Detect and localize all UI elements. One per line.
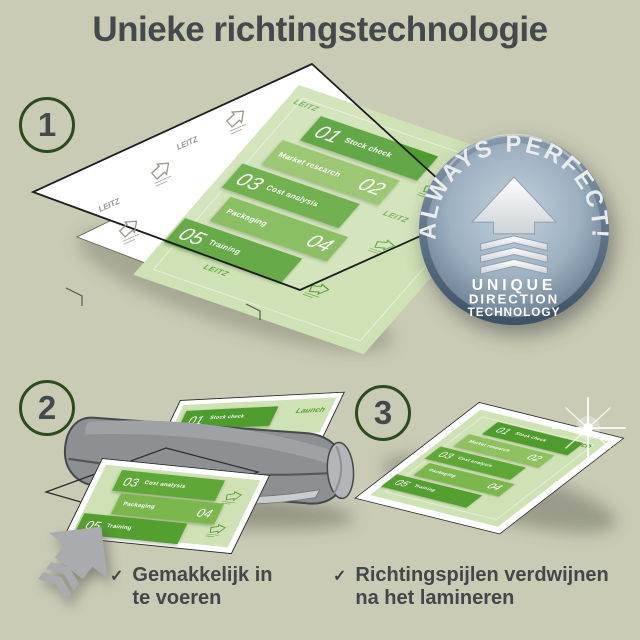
band-number: 01 <box>310 123 346 146</box>
step-number-text: 1 <box>38 106 56 144</box>
band-label: Packaging <box>224 208 269 228</box>
unique-direction-technology-figure: Unieke richtingstechnologie Launch 01 St… <box>0 0 640 640</box>
checklist-text: Richtingspijlen verdwijnen na het lamine… <box>355 564 608 611</box>
band-label: Market research <box>276 151 342 178</box>
band-number: 03 <box>121 475 141 488</box>
band-label: Stock check <box>342 137 394 159</box>
leitz-watermark: LEITZ <box>175 134 200 152</box>
band-label: Stock check <box>512 433 547 444</box>
band-label: Training <box>411 485 436 493</box>
leitz-watermark: LEITZ <box>381 209 410 224</box>
band-label: Packaging <box>426 469 456 479</box>
leitz-watermark: LEITZ <box>201 263 230 278</box>
band-number: 03 <box>232 170 268 193</box>
band-label: Training <box>206 239 242 256</box>
direction-arrow-watermark-icon <box>364 230 406 260</box>
band-label: Packaging <box>122 502 156 511</box>
direction-arrow-watermark-icon <box>299 274 341 304</box>
band-number: 02 <box>354 175 390 198</box>
checklist-item-easy-feed: ✓ Gemakkelijk in te voeren <box>110 564 272 611</box>
step-2-number: 2 <box>19 380 75 436</box>
sheet-fold-mark <box>66 288 82 306</box>
checklist-line: Richtingspijlen verdwijnen <box>355 564 608 587</box>
leitz-watermark: LEITZ <box>291 98 320 113</box>
band-number: 03 <box>435 451 456 461</box>
badge-line-technology: TECHNOLOGY <box>468 306 561 319</box>
badge-line-direction: DIRECTION <box>469 292 559 307</box>
always-perfect-badge: ALWAYS PERFECT! UNIQUE DIRECTION TECHNOL… <box>416 132 612 328</box>
band-label: Market research <box>466 440 510 453</box>
band-number: 04 <box>484 482 505 492</box>
band-number: 04 <box>302 231 338 254</box>
checklist-text: Gemakkelijk in te voeren <box>132 564 272 611</box>
checklist-line: na het lamineren <box>355 587 608 610</box>
band-label: Cost analysis <box>264 184 321 208</box>
page-title: Unieke richtingstechnologie <box>0 10 640 50</box>
band-number: 05 <box>174 225 210 248</box>
checkmark-icon: ✓ <box>333 566 346 611</box>
checkmark-icon: ✓ <box>110 566 123 611</box>
band-number: 02 <box>524 453 545 463</box>
leitz-watermark: LEITZ <box>97 196 122 214</box>
band-label: Cost analysis <box>143 480 187 490</box>
checklist-item-arrows-disappear: ✓ Richtingspijlen verdwijnen na het lami… <box>333 564 609 611</box>
band-number: 05 <box>391 479 412 489</box>
step-1-number: 1 <box>19 97 75 153</box>
band-label: Cost analysis <box>455 457 493 469</box>
step-3-number: 3 <box>355 385 411 441</box>
step-number-text: 3 <box>374 394 392 432</box>
step-number-text: 2 <box>38 389 56 427</box>
shine-sparkle-icon <box>545 396 631 466</box>
band-number: 04 <box>195 506 215 519</box>
direction-arrow-watermark-icon <box>219 484 249 508</box>
checklist-line: te voeren <box>132 587 272 610</box>
band-number: 01 <box>492 426 513 436</box>
checklist-line: Gemakkelijk in <box>132 564 272 587</box>
